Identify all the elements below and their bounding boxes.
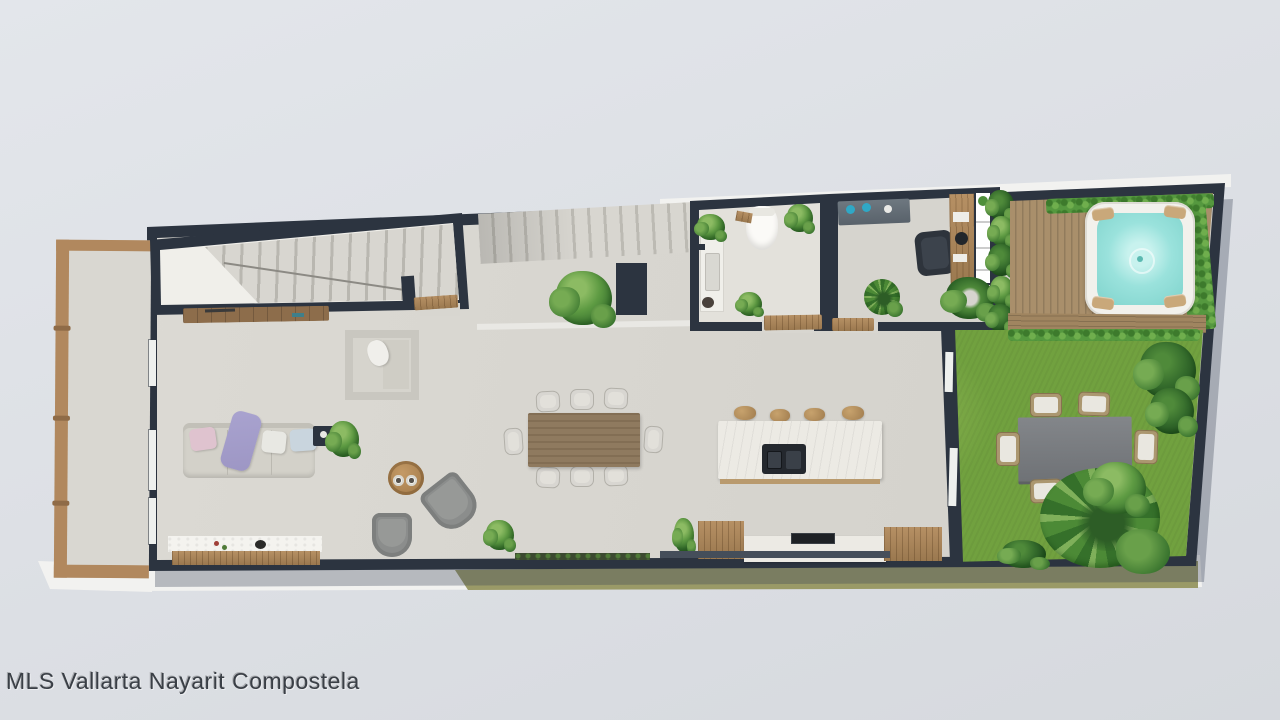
decor-bowl-teal xyxy=(846,205,855,214)
hot-tub-water xyxy=(1097,213,1183,305)
bathroom-door-mat xyxy=(764,314,822,330)
dining-chair xyxy=(570,389,594,410)
outdoor-chair xyxy=(1133,430,1158,465)
window-planter-strip xyxy=(515,553,650,560)
window-garden-wall xyxy=(948,448,958,506)
bath-bowl xyxy=(702,297,714,308)
bar-stool xyxy=(804,408,825,421)
dining-chair xyxy=(643,425,664,453)
terrace-wood-joint xyxy=(52,501,69,506)
garden-fern xyxy=(1090,462,1146,514)
coffee-cup xyxy=(406,475,417,486)
kitchen-cabinet-right xyxy=(884,527,942,561)
desk-notepad xyxy=(953,254,967,262)
island-sink xyxy=(762,444,806,474)
terrace-wood-joint xyxy=(53,416,70,421)
floor-plant xyxy=(486,520,514,550)
tv-sideboard-top xyxy=(168,536,322,552)
dining-chair xyxy=(603,464,628,486)
sofa-side-plant xyxy=(329,421,359,457)
office-palm-plant xyxy=(864,279,900,315)
console-decor-teal xyxy=(292,313,304,317)
cooktop xyxy=(791,533,835,544)
window-frame-bottom xyxy=(660,551,890,558)
kitchen-plant xyxy=(674,518,694,552)
stair-closet xyxy=(616,263,647,315)
wall-console-shelf xyxy=(183,306,329,324)
floorplan-scene: MLS Vallarta Nayarit Compostela xyxy=(0,0,1280,720)
garden-hedge-strip xyxy=(1008,329,1200,341)
sideboard-decor xyxy=(214,541,219,546)
dining-chair xyxy=(535,390,560,412)
sideboard-decor xyxy=(222,545,227,550)
pillow-white xyxy=(261,430,287,454)
desk-headphones xyxy=(955,232,968,245)
dining-chair xyxy=(603,387,628,409)
dining-chair xyxy=(503,427,524,455)
outdoor-chair xyxy=(1078,391,1111,416)
office-door-mat xyxy=(832,318,874,331)
watermark-text: MLS Vallarta Nayarit Compostela xyxy=(6,668,360,695)
bathroom-plant xyxy=(738,292,762,316)
desk-papers xyxy=(953,212,969,222)
window-left-wall xyxy=(149,498,156,544)
dining-chair xyxy=(535,466,560,488)
armchair-gray xyxy=(372,513,412,557)
faucet xyxy=(697,244,705,250)
bathroom-plant xyxy=(697,214,725,240)
sideboard-bowl xyxy=(255,540,266,549)
coffee-cup xyxy=(393,475,404,486)
bar-stool xyxy=(842,406,864,420)
outdoor-chair xyxy=(996,432,1020,466)
window-left-wall xyxy=(149,430,156,490)
bar-stool xyxy=(734,406,756,420)
terrace xyxy=(54,240,151,579)
dining-table xyxy=(528,413,640,467)
decor-vase-white xyxy=(884,205,892,213)
decor-bowl-teal xyxy=(862,203,871,212)
garden-bush xyxy=(1002,540,1046,568)
garden-monstera xyxy=(1150,388,1194,434)
window-garden-wall xyxy=(945,352,954,392)
bathroom-plant xyxy=(787,204,813,232)
tv-sideboard-front xyxy=(172,551,320,565)
outdoor-chair xyxy=(1030,393,1062,417)
dining-chair xyxy=(570,466,594,487)
indoor-plant-large xyxy=(556,271,612,325)
window-left-wall xyxy=(149,340,156,386)
pillow-pink xyxy=(189,426,218,451)
terrace-wood-joint xyxy=(54,326,71,331)
